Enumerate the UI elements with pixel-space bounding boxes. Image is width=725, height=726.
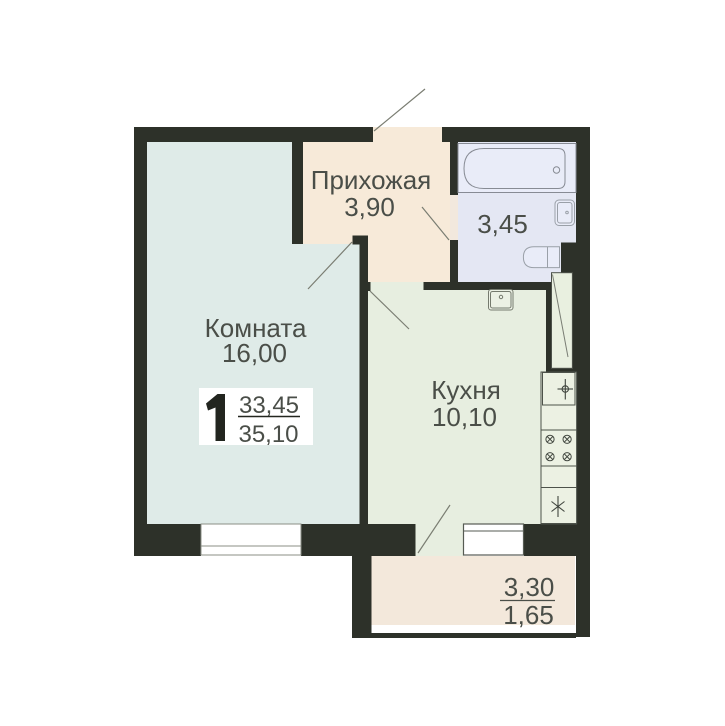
svg-text:3,45: 3,45 — [477, 209, 528, 239]
svg-text:3,90: 3,90 — [344, 192, 395, 222]
svg-text:Прихожая: Прихожая — [311, 165, 431, 195]
svg-text:1,65: 1,65 — [503, 600, 554, 630]
svg-text:35,10: 35,10 — [238, 421, 298, 448]
svg-text:3,30: 3,30 — [504, 572, 555, 602]
svg-text:10,10: 10,10 — [432, 402, 497, 432]
svg-text:16,00: 16,00 — [222, 338, 287, 368]
svg-text:Кухня: Кухня — [431, 375, 501, 405]
svg-text:33,45: 33,45 — [239, 392, 299, 419]
